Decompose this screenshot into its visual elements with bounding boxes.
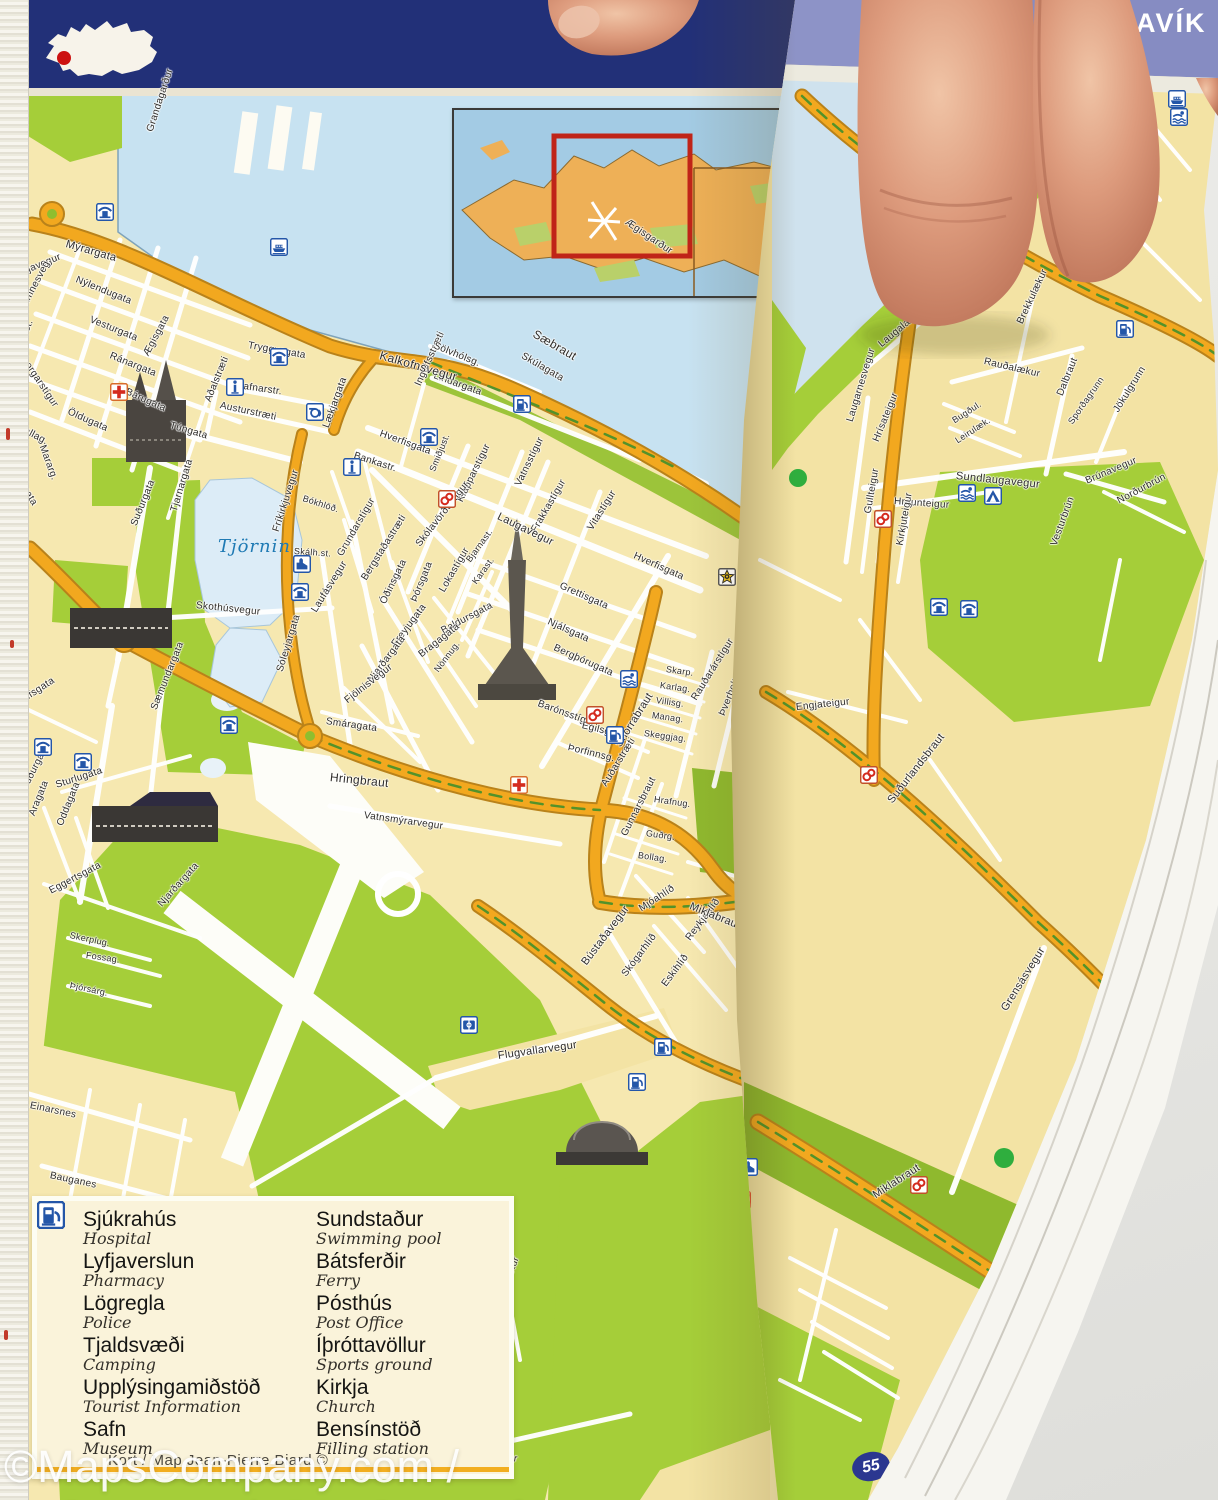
hand-turning-page <box>0 0 1218 1500</box>
index-finger <box>858 0 1040 326</box>
fingertip-top-icon <box>548 0 700 56</box>
thumb <box>1033 0 1160 283</box>
finger-edge-corner <box>1196 78 1218 116</box>
photo-of-map-book: Tjörnin GrandagarðurMýrargataÆgisgarðurS… <box>0 0 1218 1500</box>
